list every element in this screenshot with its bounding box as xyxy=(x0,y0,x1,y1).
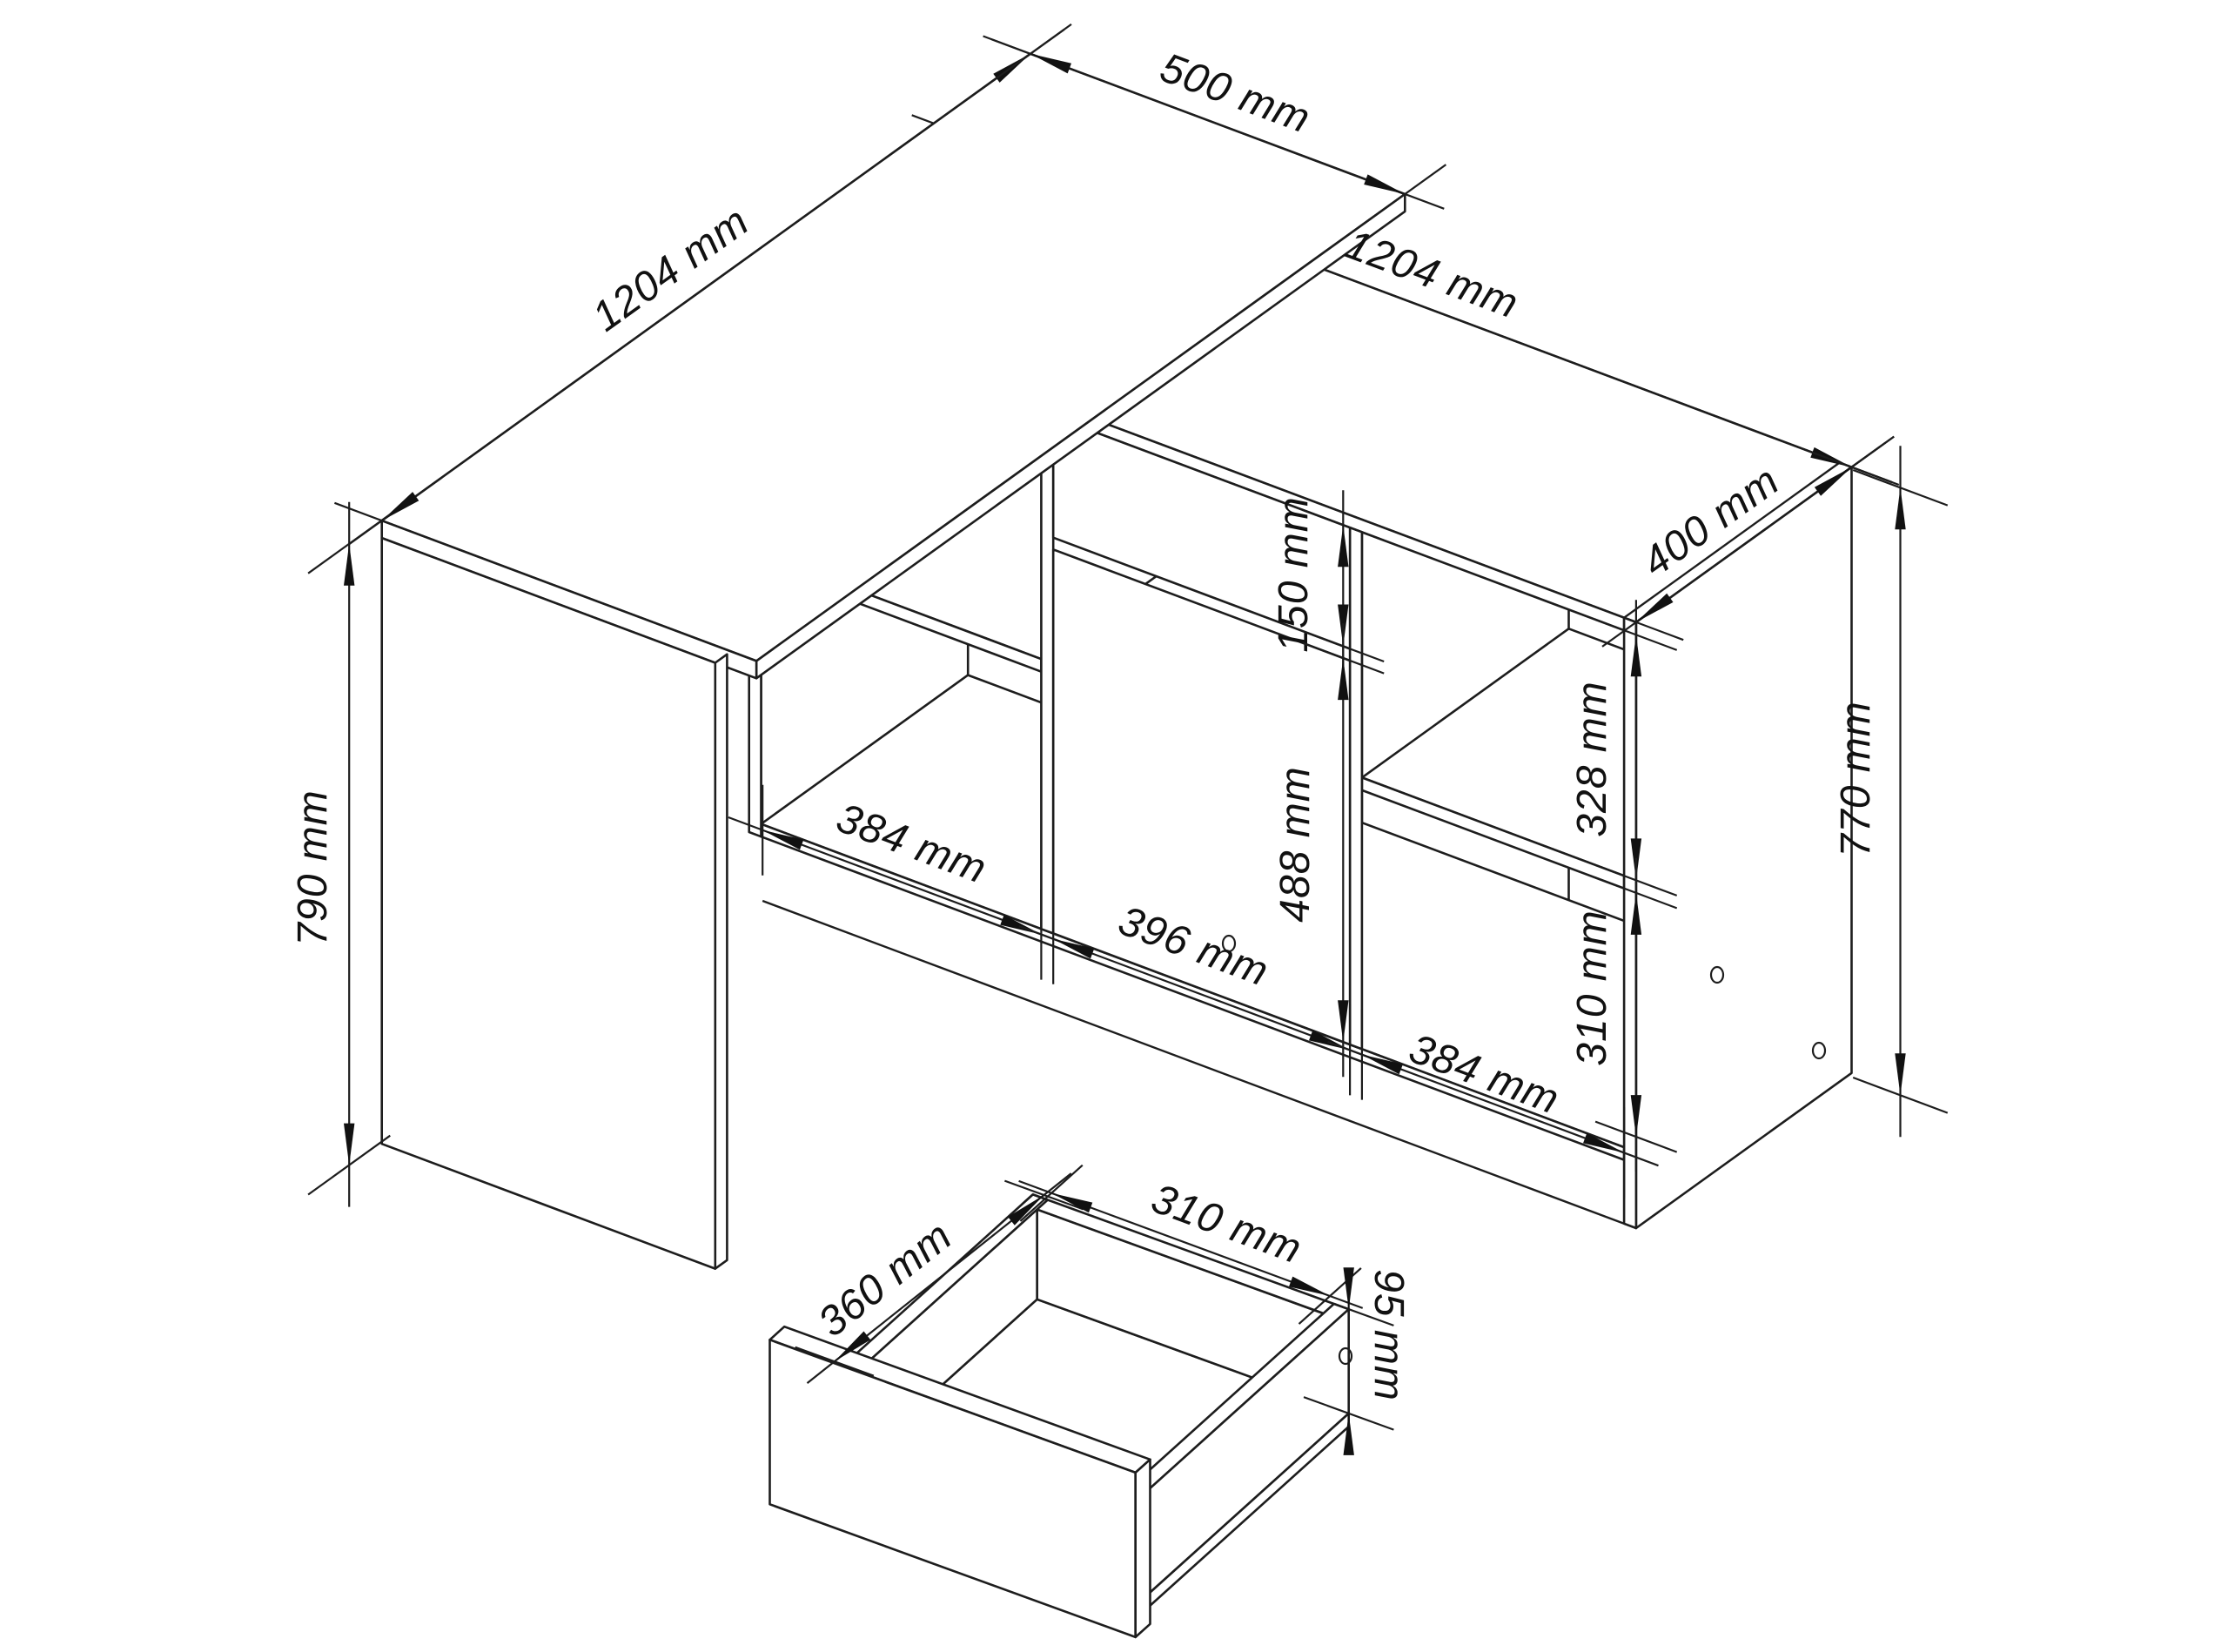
svg-text:95 mm: 95 mm xyxy=(1366,1269,1412,1401)
svg-text:150 mm: 150 mm xyxy=(1271,496,1317,652)
svg-text:770 mm: 770 mm xyxy=(1833,701,1879,856)
svg-text:790 mm: 790 mm xyxy=(290,789,336,945)
svg-text:310 mm: 310 mm xyxy=(1569,910,1615,1065)
svg-text:328 mm: 328 mm xyxy=(1569,681,1615,836)
svg-text:488 mm: 488 mm xyxy=(1272,766,1319,922)
